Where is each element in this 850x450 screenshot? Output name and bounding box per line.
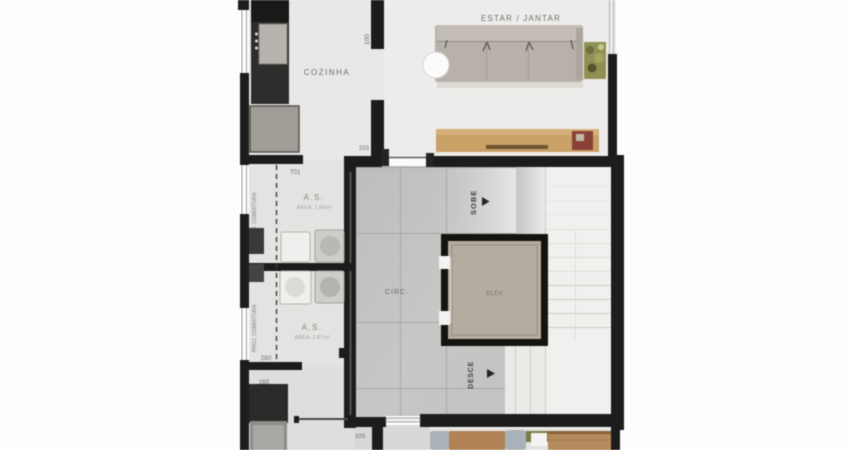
svg-text:SOBE: SOBE: [469, 190, 478, 215]
svg-text:ESTAR / JANTAR: ESTAR / JANTAR: [481, 14, 561, 23]
svg-text:A.S.: A.S.: [304, 193, 325, 202]
svg-text:A.S.: A.S.: [302, 323, 323, 332]
svg-text:CIRC.: CIRC.: [385, 289, 409, 296]
svg-text:105: 105: [355, 433, 366, 440]
svg-text:ELEV.: ELEV.: [486, 291, 504, 297]
svg-text:PROJ. COBERTURA: PROJ. COBERTURA: [252, 304, 258, 352]
svg-text:203: 203: [359, 146, 370, 152]
svg-text:COZINHA: COZINHA: [304, 68, 351, 77]
svg-text:DESCE: DESCE: [468, 361, 475, 389]
svg-text:T01: T01: [290, 170, 301, 176]
svg-text:100: 100: [364, 34, 371, 45]
svg-text:ÁREA: 1.84m²: ÁREA: 1.84m²: [296, 204, 331, 211]
svg-text:ÁREA: 2.87m²: ÁREA: 2.87m²: [294, 334, 329, 341]
svg-text:280: 280: [261, 355, 272, 362]
